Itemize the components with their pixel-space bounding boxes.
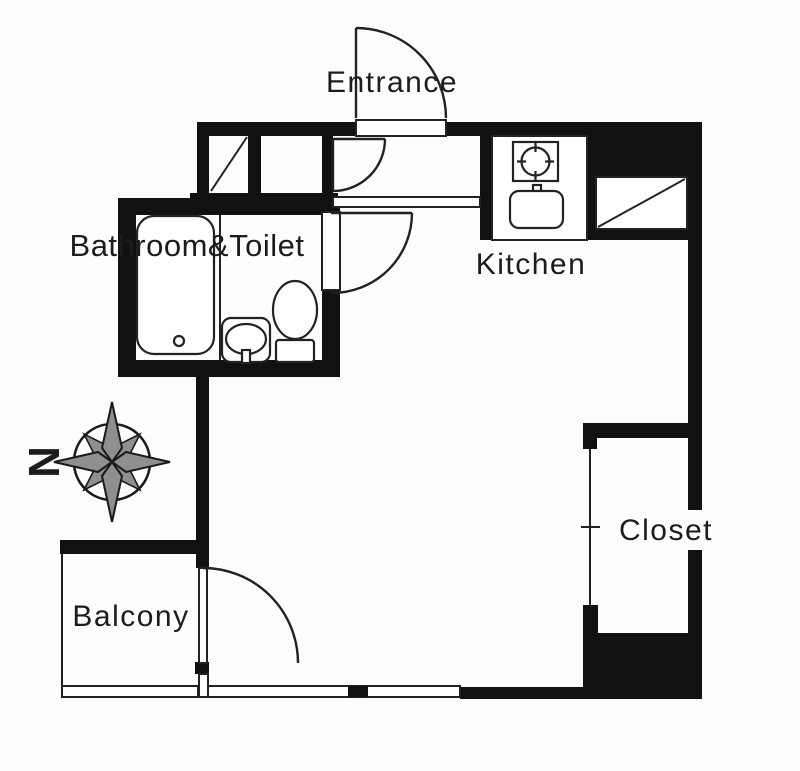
wall-closet-top bbox=[583, 423, 695, 438]
storage-door-swing bbox=[333, 139, 385, 191]
closet-label: Closet bbox=[619, 514, 713, 547]
entrance-step-edge bbox=[333, 197, 480, 207]
kitchen-label: Kitchen bbox=[476, 248, 587, 281]
wall-bottom-right-block bbox=[583, 633, 702, 699]
bathroom-door-swing bbox=[331, 213, 412, 293]
window-double-line bbox=[198, 686, 460, 697]
balcony-door-leaf bbox=[199, 568, 207, 663]
wall-storage-right bbox=[322, 136, 333, 194]
wall-bottom-thin bbox=[460, 687, 583, 699]
balcony-edge-double-line bbox=[62, 686, 198, 697]
wall-bathroom-right-lower bbox=[322, 290, 340, 377]
entrance-label: Entrance bbox=[326, 66, 458, 99]
washbasin-tap-icon bbox=[242, 350, 250, 363]
wall-kitchen-left bbox=[480, 136, 492, 240]
window-mullion bbox=[348, 686, 368, 697]
compass-point-down bbox=[102, 462, 122, 522]
bathroom-toilet-label: Bathroom&Toilet bbox=[70, 228, 305, 263]
compass-north-label: N bbox=[20, 446, 69, 478]
floor-plan: N Entrance Kitchen Bathroom&Toilet Close… bbox=[0, 0, 800, 771]
kitchen-sink-icon bbox=[510, 191, 563, 228]
wall-top-right bbox=[446, 122, 702, 136]
compass-rose-icon: N bbox=[20, 402, 170, 522]
balcony-door-swing bbox=[203, 568, 298, 663]
wall-closet-bottom-stub bbox=[583, 605, 598, 635]
toilet-tank-icon bbox=[276, 340, 314, 362]
balcony-label: Balcony bbox=[72, 600, 189, 633]
toilet-icon bbox=[273, 281, 317, 339]
wall-storage-divider bbox=[248, 136, 261, 194]
storage-diagonal-icon bbox=[211, 137, 247, 191]
wall-bathroom-top bbox=[118, 198, 340, 215]
kitchen-counter bbox=[492, 136, 587, 240]
compass-point-east bbox=[112, 452, 170, 472]
balcony-door-jamb bbox=[199, 674, 208, 697]
wall-closet-top-stub bbox=[583, 423, 597, 449]
wall-balcony-top bbox=[60, 540, 200, 554]
bathroom-doorway-gap bbox=[322, 212, 340, 290]
wall-bathroom-left bbox=[118, 198, 136, 377]
wall-top-left bbox=[197, 122, 356, 136]
compass-point-up bbox=[102, 402, 122, 462]
floor-plan-canvas: N Entrance Kitchen Bathroom&Toilet Close… bbox=[0, 0, 800, 771]
entrance-doorway-sill bbox=[356, 120, 446, 136]
wall-main-left bbox=[196, 377, 209, 568]
